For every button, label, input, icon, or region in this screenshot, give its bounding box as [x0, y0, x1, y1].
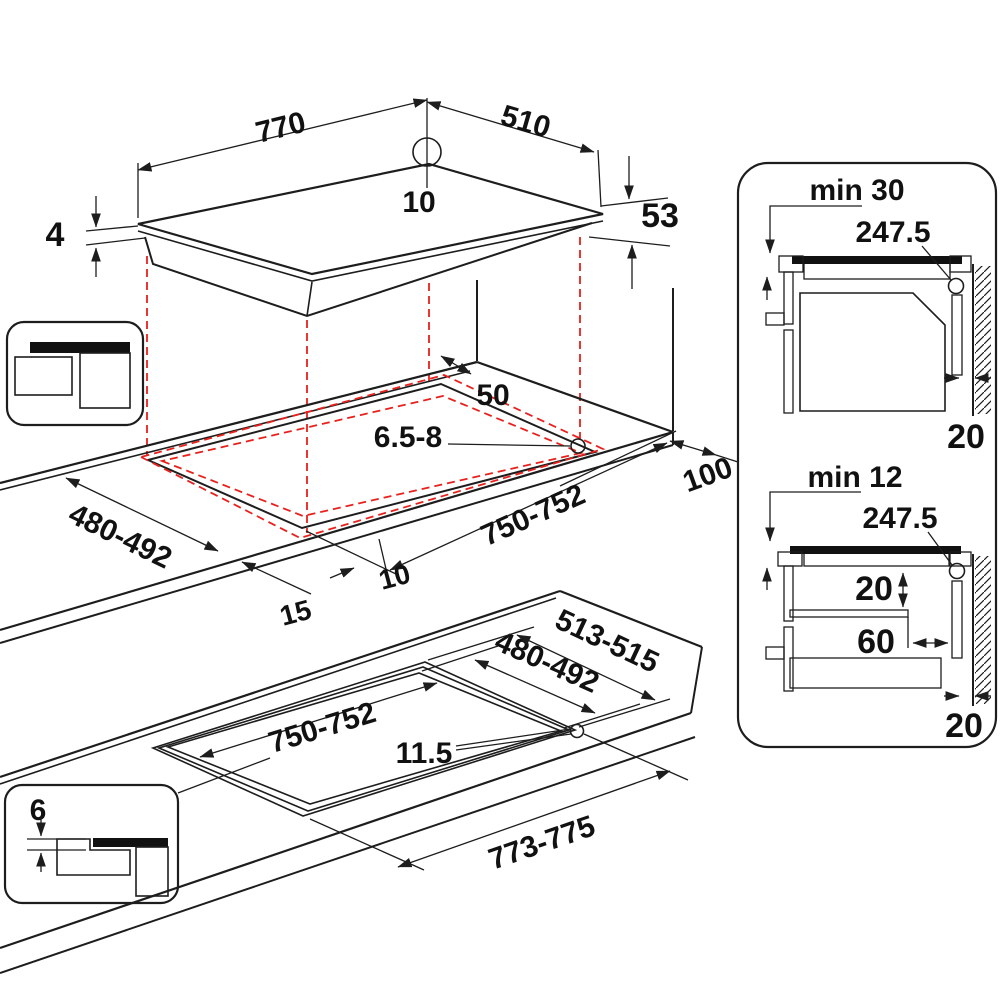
- deflector-strip: [952, 295, 962, 375]
- side-gap-label: 100: [679, 451, 737, 499]
- deflector-strip: [952, 581, 962, 658]
- outer-width-label: 773-775: [484, 809, 599, 876]
- flush-cutout-view: 11.5 750-752 480-492 513-515 773-775: [0, 591, 702, 973]
- wall-gap-label: 20: [947, 418, 985, 456]
- min30-bracket: [770, 206, 862, 253]
- hob-glass-face: [138, 164, 603, 274]
- shelf-inset-label: 60: [857, 623, 895, 661]
- worktop-side: [691, 647, 702, 713]
- cabinet-side: [784, 330, 793, 413]
- rear-gap-label: 50: [476, 379, 509, 412]
- cabinet-rail: [766, 313, 784, 325]
- dim-line-15: [242, 562, 311, 594]
- min12-bracket: [770, 492, 861, 541]
- min30-section: min 30 247.5 2: [766, 174, 991, 456]
- hob-body-section: [804, 553, 949, 566]
- cabinet-side: [784, 627, 793, 691]
- wall-gap-label: 20: [945, 707, 983, 745]
- glass-height-label: 4: [46, 216, 65, 254]
- clamp-left: [778, 552, 802, 566]
- hob-top-view: 10 770 510 4 53: [46, 98, 679, 533]
- fixing-line-dashed: [162, 396, 581, 516]
- hob-body-section: [80, 353, 130, 408]
- flush-step-label: 6: [30, 794, 47, 827]
- ext-line: [584, 734, 688, 780]
- cabinet-side: [784, 566, 793, 621]
- leader-line: [448, 444, 570, 446]
- dim-line-100: [670, 441, 716, 455]
- ext-line: [589, 237, 670, 246]
- hob-body-section: [136, 847, 168, 896]
- oven-body: [800, 293, 945, 411]
- inset-frame: [7, 322, 143, 425]
- ext-line: [598, 150, 601, 207]
- hob-body-corner: [307, 282, 312, 316]
- depth-label: 510: [497, 99, 554, 145]
- worktop-section: [15, 357, 72, 395]
- min12-section: min 12 247.5 20 60: [766, 461, 991, 745]
- hob-glass-section: [30, 342, 130, 353]
- shelf: [790, 610, 908, 617]
- surface-mount-inset: [7, 322, 143, 425]
- ext-line: [86, 238, 145, 245]
- ext-line: [579, 699, 670, 727]
- fixing-depth-label: 6.5-8: [374, 421, 442, 454]
- inner-width-label: 750-752: [265, 696, 380, 760]
- wall-hatch: [975, 266, 991, 414]
- drawer: [790, 658, 941, 688]
- hole-offset-label: 10: [402, 186, 435, 219]
- oven-vent: [838, 307, 895, 323]
- hob-glass-section: [93, 838, 168, 847]
- hob-glass-section: [790, 546, 961, 554]
- installation-diagram: 10 770 510 4 53: [0, 0, 1000, 1000]
- center-ref-label: 247.5: [862, 502, 937, 535]
- cutout-depth-label: 480-492: [63, 497, 176, 575]
- hob-glass-thickness: [138, 221, 603, 281]
- cabinet-side: [784, 272, 793, 324]
- clearance-panel: min 30 247.5 2: [738, 163, 996, 747]
- ext-line: [86, 226, 138, 231]
- center-ref-label: 247.5: [855, 216, 930, 249]
- front-edge-label: 15: [276, 594, 314, 632]
- hob-body-section: [804, 263, 950, 279]
- diagram-svg: 10 770 510 4 53: [0, 0, 1000, 1000]
- edge-offset-label: 10: [375, 558, 413, 596]
- wall-hatch: [975, 556, 991, 704]
- cabinet-rail: [766, 647, 784, 659]
- worktop-thickness-edge: [0, 737, 695, 973]
- body-height-label: 53: [641, 197, 679, 235]
- ref-circle: [949, 279, 964, 294]
- min12-title: min 12: [807, 461, 902, 494]
- worktop-cutout-view: 6.5-8 50 100 480-492 750-752 15 10: [0, 280, 738, 643]
- ext-line: [564, 704, 640, 728]
- width-label: 770: [252, 106, 309, 150]
- rebate-label: 11.5: [396, 737, 453, 770]
- cutout-width-label: 750-752: [476, 478, 590, 553]
- rebate-groove: [153, 662, 575, 816]
- flush-mount-inset: 6: [5, 758, 270, 903]
- dim-line-10: [330, 568, 354, 578]
- callout-line: [178, 758, 270, 793]
- shelf-gap-label: 20: [855, 570, 893, 608]
- min30-title: min 30: [809, 174, 904, 207]
